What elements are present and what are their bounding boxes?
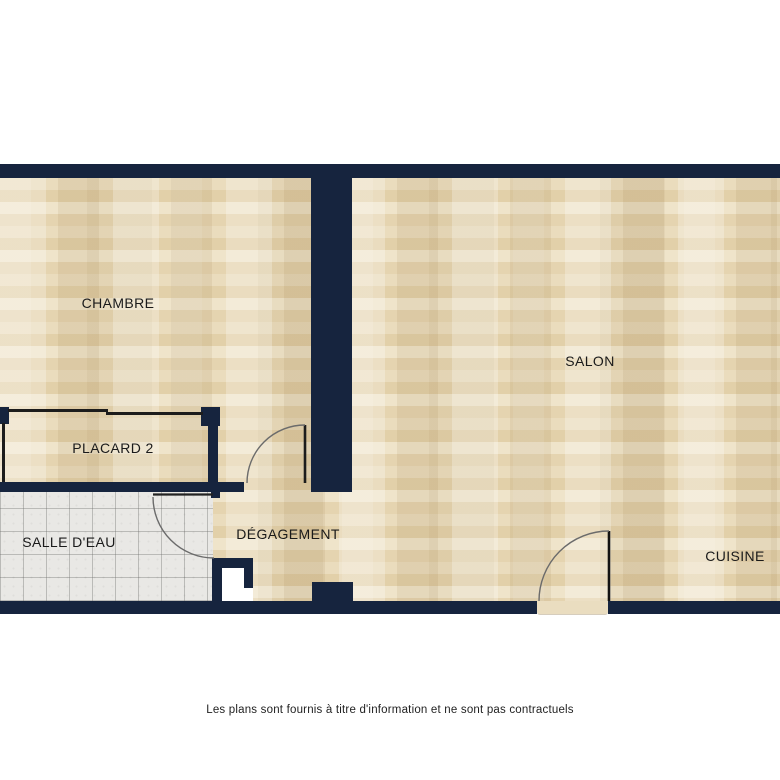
disclaimer-text: Les plans sont fournis à titre d'informa… bbox=[0, 704, 780, 716]
room-label-salon: SALON bbox=[565, 353, 614, 369]
door-arc-entry bbox=[539, 531, 609, 601]
door-arc-chambre bbox=[247, 425, 305, 483]
room-label-chambre: CHAMBRE bbox=[82, 295, 155, 311]
room-label-salle-deau: SALLE D'EAU bbox=[22, 534, 115, 550]
room-label-placard-2: PLACARD 2 bbox=[72, 440, 153, 456]
room-label-cuisine: CUISINE bbox=[705, 548, 765, 564]
door-swings-overlay bbox=[0, 0, 780, 780]
floor-plan: CHAMBRE SALON PLACARD 2 SALLE D'EAU DÉGA… bbox=[0, 0, 780, 780]
room-label-degagement: DÉGAGEMENT bbox=[236, 526, 340, 542]
door-arc-salle-deau bbox=[153, 497, 214, 558]
